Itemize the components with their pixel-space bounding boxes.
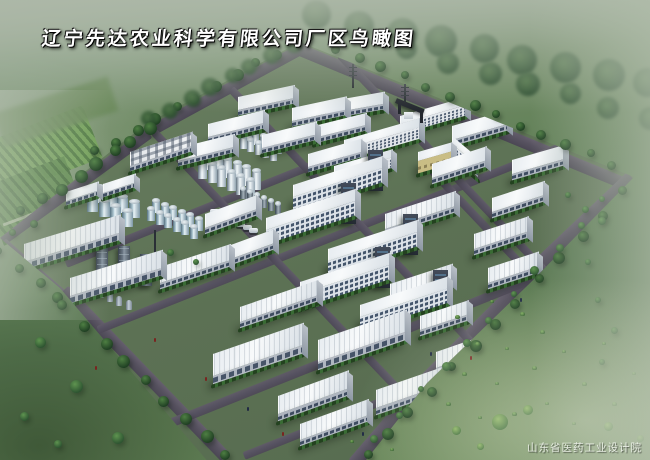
pedestrian — [282, 432, 284, 436]
storage-tank — [247, 139, 254, 152]
end-wall — [233, 134, 239, 158]
pedestrian — [247, 407, 249, 411]
storage-tank — [190, 226, 198, 239]
storage-tank — [240, 188, 246, 199]
tree — [141, 375, 151, 385]
storage-tank — [164, 215, 172, 228]
tree — [101, 338, 113, 350]
storage-tank — [268, 200, 274, 211]
end-wall — [485, 146, 491, 172]
tree — [70, 380, 83, 393]
end-wall — [161, 250, 167, 281]
end-wall — [273, 229, 279, 255]
pedestrian — [154, 338, 156, 342]
tree — [20, 412, 29, 421]
mist-overlay — [0, 90, 110, 320]
designer-watermark: 山东省医药工业设计院 — [527, 440, 642, 455]
end-wall — [317, 280, 323, 307]
storage-tank — [181, 222, 189, 235]
end-wall — [256, 195, 262, 221]
end-wall — [119, 215, 125, 246]
storage-tank — [208, 163, 217, 183]
end-wall — [302, 323, 308, 359]
end-wall — [417, 220, 423, 252]
tree — [220, 450, 230, 460]
storage-tank — [217, 167, 226, 187]
end-wall — [454, 191, 460, 218]
mist-overlay — [360, 280, 650, 460]
shrub — [350, 440, 354, 443]
end-wall — [315, 122, 321, 146]
pedestrian — [205, 377, 207, 381]
page-title: 辽宁先达农业科学有限公司厂区鸟瞰图 — [41, 24, 418, 51]
tree — [54, 440, 62, 448]
end-wall — [191, 132, 197, 157]
storage-tank — [156, 212, 164, 225]
tree — [193, 259, 199, 265]
tree — [79, 321, 90, 332]
storage-tank — [227, 171, 236, 191]
end-wall — [229, 244, 235, 272]
guard-house — [404, 112, 413, 119]
equipment-drum — [126, 300, 132, 310]
end-wall — [382, 156, 388, 188]
tree — [35, 337, 46, 348]
end-wall — [355, 189, 361, 221]
tree — [112, 432, 124, 444]
tree — [158, 396, 169, 407]
tree — [124, 136, 136, 148]
equipment-drum — [116, 296, 122, 306]
factory-campus-birdseye-rendering: 辽宁先达农业科学有限公司厂区鸟瞰图 山东省医药工业设计院 — [0, 0, 650, 460]
end-wall — [263, 110, 269, 134]
gate-post — [420, 111, 423, 123]
storage-tank — [173, 219, 181, 232]
end-wall — [507, 110, 513, 136]
tree — [180, 413, 192, 425]
tree — [167, 249, 174, 256]
tanker-truck — [249, 228, 258, 233]
tree — [516, 122, 525, 131]
pedestrian — [95, 366, 97, 370]
storage-tank — [147, 208, 155, 221]
tree — [144, 122, 157, 135]
end-wall — [347, 371, 353, 402]
tree — [133, 125, 144, 136]
